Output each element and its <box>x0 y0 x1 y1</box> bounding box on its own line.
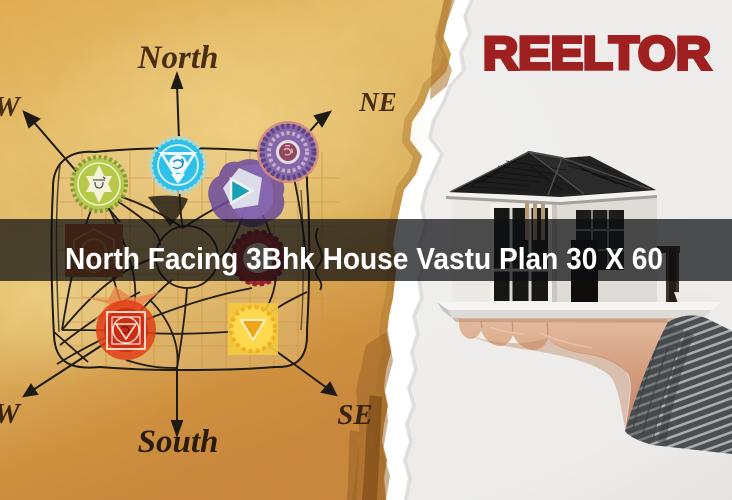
svg-text:North Facing 3Bhk House Vastu: North Facing 3Bhk House Vastu Plan 30 X … <box>65 241 663 276</box>
svg-text:W: W <box>0 91 22 123</box>
svg-text:North: North <box>137 40 219 76</box>
svg-text:SE: SE <box>337 399 372 431</box>
svg-text:South: South <box>138 424 219 460</box>
svg-text:REELTOR: REELTOR <box>483 27 711 79</box>
svg-text:W: W <box>0 398 22 430</box>
svg-text:NE: NE <box>358 87 397 117</box>
